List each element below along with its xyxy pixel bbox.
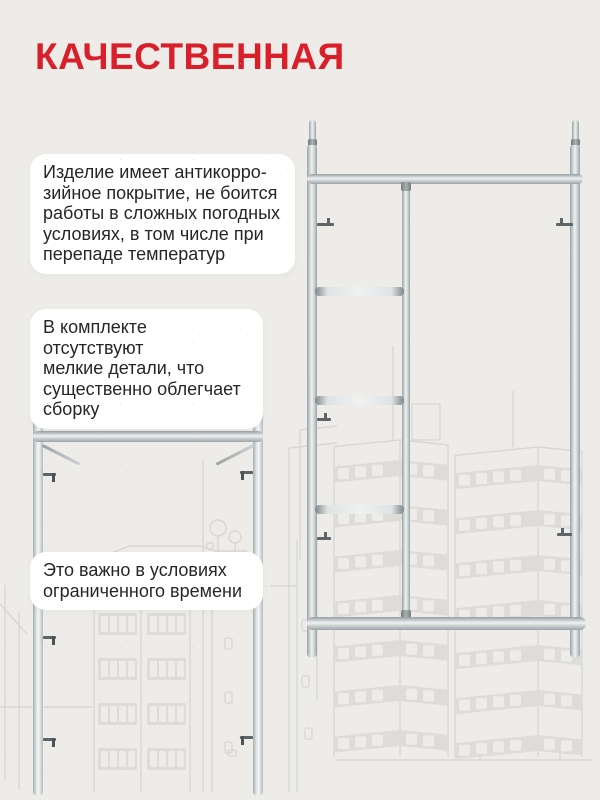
page-title: КАЧЕСТВЕННАЯ <box>35 36 345 78</box>
frame-bottom-bar <box>307 617 586 630</box>
frame-gusset-brace <box>216 444 255 466</box>
card-line: В комплекте отсутствуют <box>43 317 250 358</box>
promo-page: { "page": { "background_color": "#edece9… <box>0 0 600 800</box>
frame-lock-tab <box>557 530 572 541</box>
frame-lock-tab <box>43 633 56 644</box>
frame-lock-tab <box>43 470 56 481</box>
feature-card-time-saving: Это важно в условиях ограниченного време… <box>30 552 263 610</box>
card-line: условиях, в том числе при <box>43 224 282 245</box>
frame-lock-tab <box>317 534 331 545</box>
frame-lock-tab <box>317 415 331 426</box>
frame-gusset-brace <box>42 444 81 466</box>
frame-ladder-rung <box>315 396 404 405</box>
card-line: существенно облегчает <box>43 379 250 400</box>
card-line: Это важно в условиях <box>43 560 250 581</box>
frame-lock-tab <box>240 733 253 744</box>
frame-ladder-rung <box>315 505 404 514</box>
card-line: Изделие имеет антикорро- <box>43 162 282 183</box>
frame-top-bar <box>307 174 583 184</box>
scaffold-frame-photo-right <box>305 118 590 663</box>
frame-ladder-rung <box>315 287 404 296</box>
frame-lock-tab <box>317 220 334 231</box>
card-line: зийное покрытие, не боится <box>43 183 282 204</box>
frame-rail-joint <box>401 182 411 191</box>
feature-card-anticorrosion: Изделие имеет антикорро- зийное покрытие… <box>30 154 295 274</box>
card-line: сборку <box>43 399 250 420</box>
frame-top-bar <box>33 431 263 442</box>
card-line: перепаде температур <box>43 244 282 265</box>
card-line: ограниченного времени <box>43 581 250 602</box>
card-line: мелкие детали, что <box>43 358 250 379</box>
frame-lock-tab <box>556 220 573 231</box>
frame-lock-tab <box>43 735 56 746</box>
card-line: работы в сложных погодных <box>43 203 282 224</box>
feature-card-no-small-parts: В комплекте отсутствуют мелкие детали, ч… <box>30 309 263 429</box>
frame-lock-tab <box>240 468 253 479</box>
